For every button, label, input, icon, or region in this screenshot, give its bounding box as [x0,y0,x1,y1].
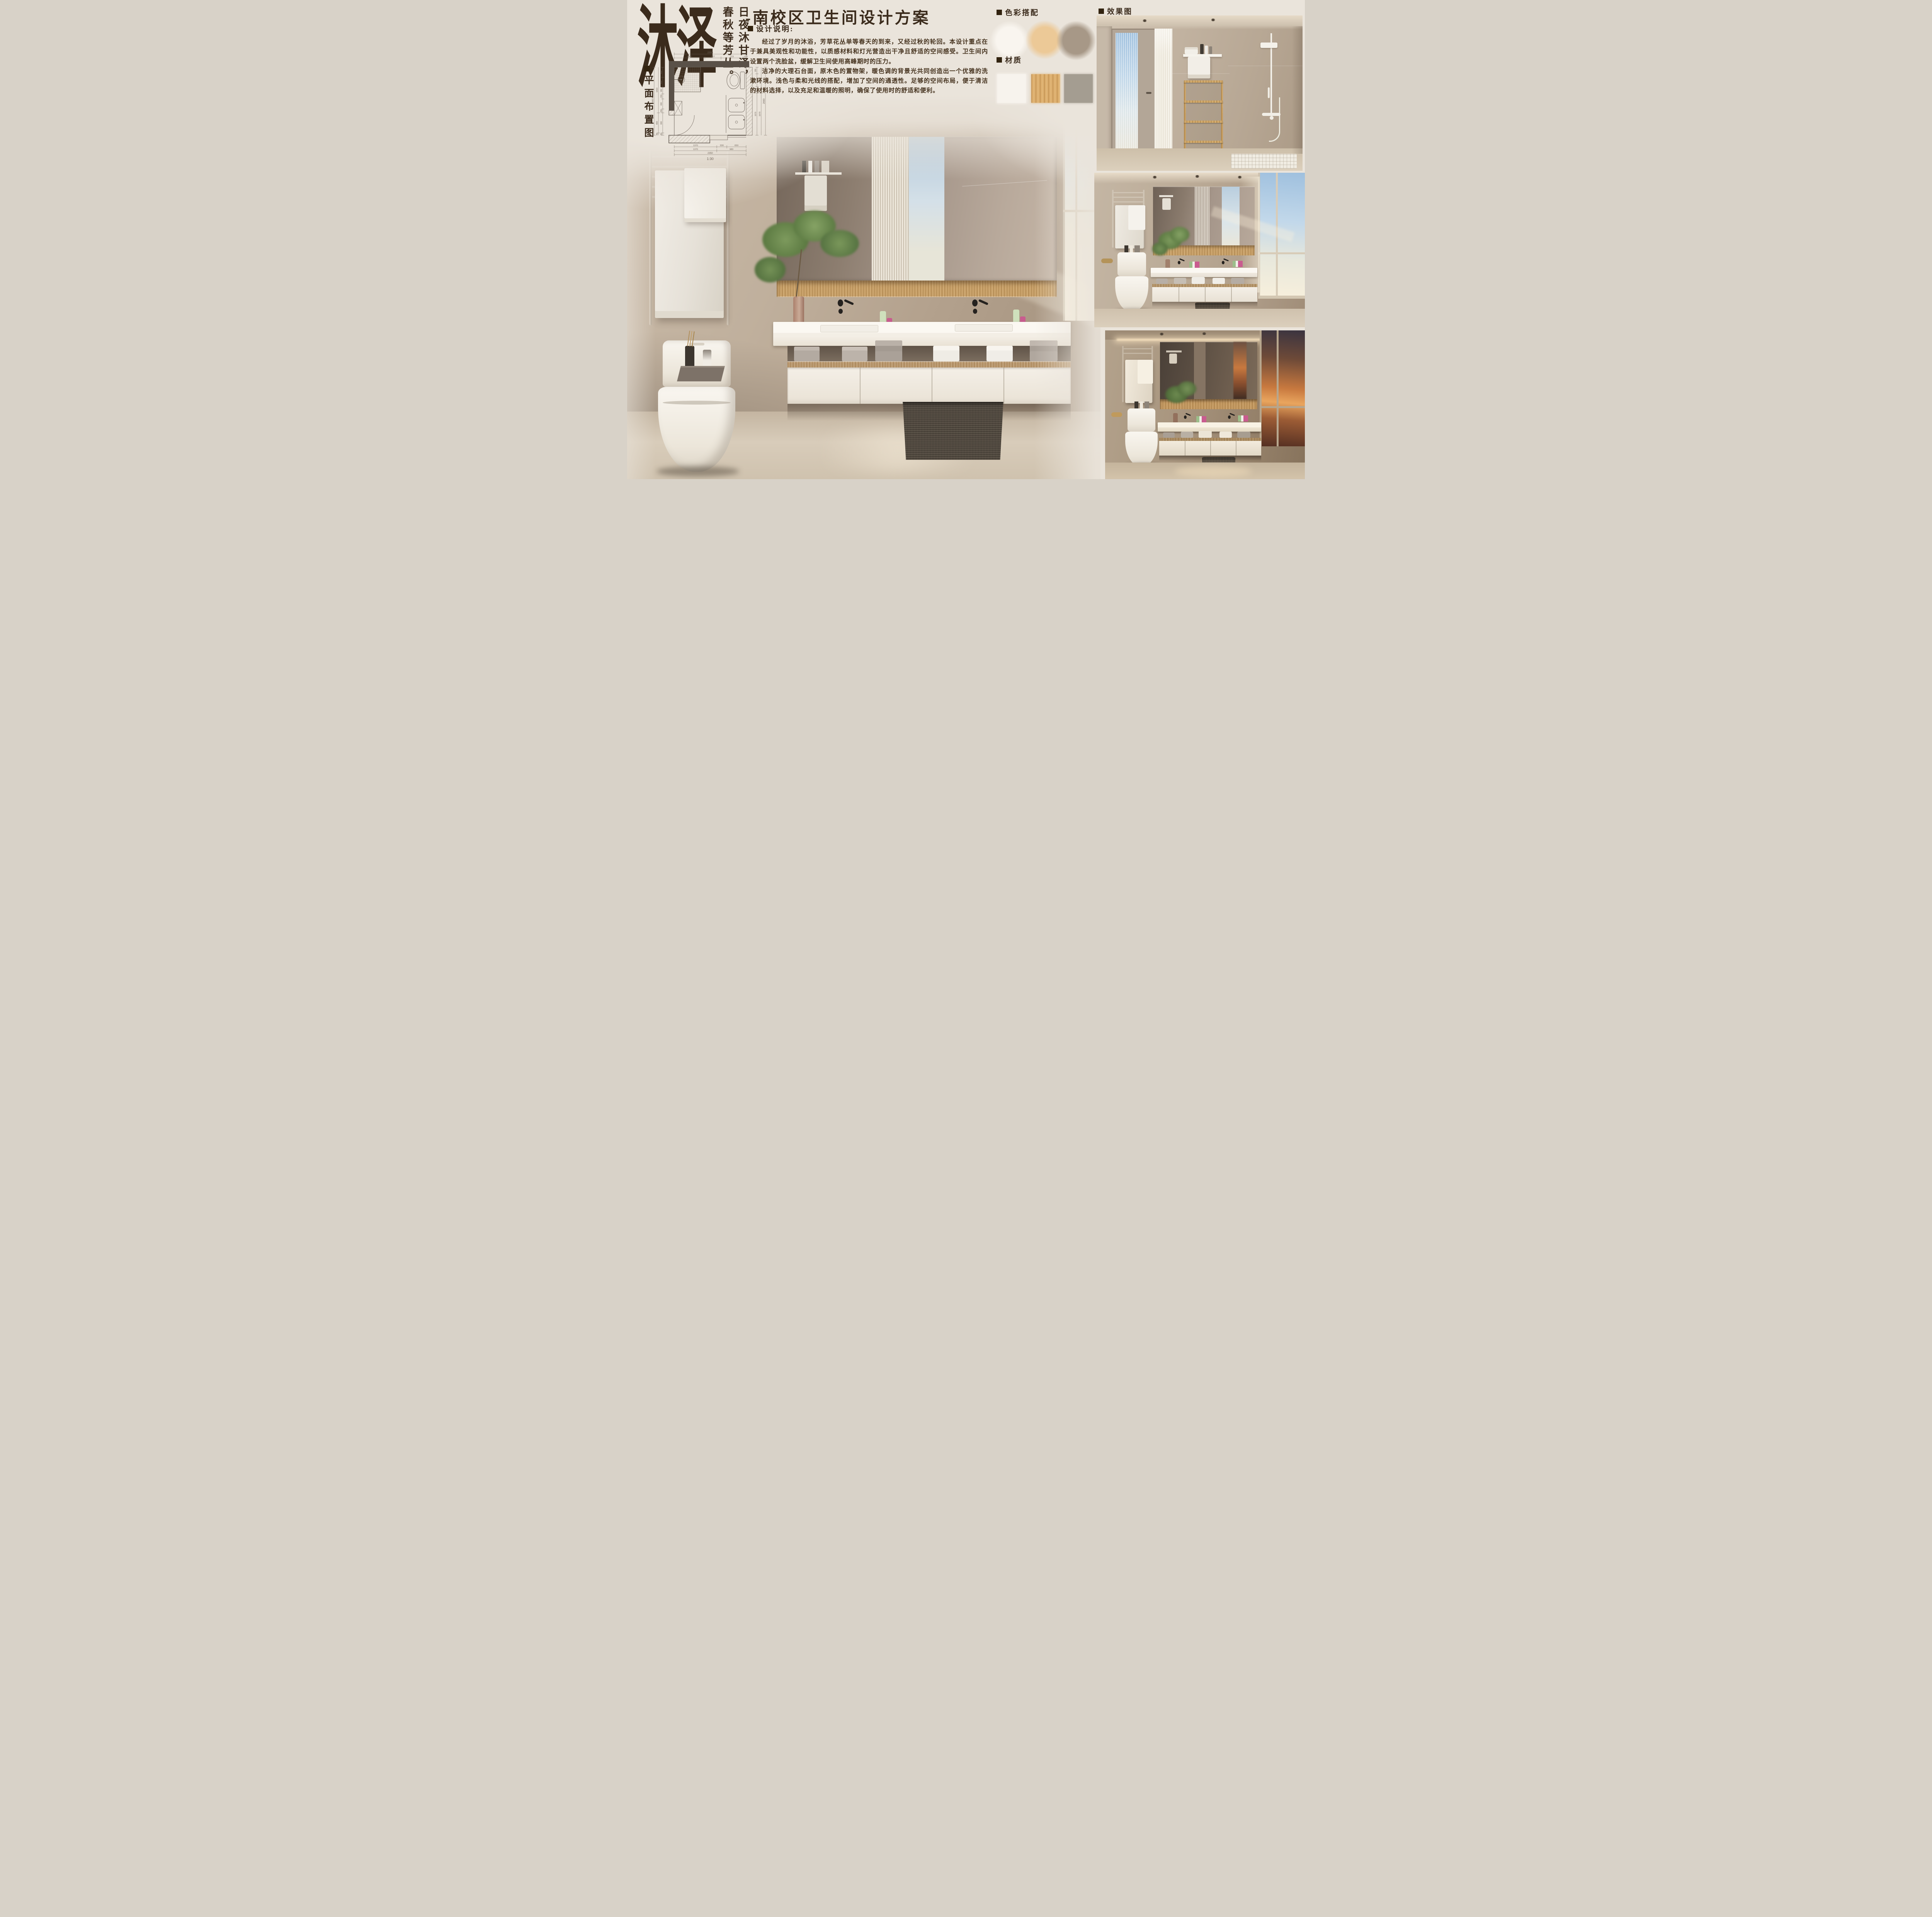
r2-toilet-bowl [1115,276,1148,312]
r3-toilet-tank [1128,408,1155,432]
svg-text:1810: 1810 [656,88,658,92]
r1-shower-knob [1270,116,1274,120]
floor-plan-bullet [644,66,650,71]
svg-text:2690: 2690 [763,99,765,104]
svg-text:100: 100 [744,56,748,58]
r3-shelf-towel [1237,432,1250,438]
hero-faucet-right [972,299,989,317]
r1-shelf-towels [1185,47,1198,54]
svg-text:1670: 1670 [759,112,761,116]
r3-toilet-tray-items [1134,401,1149,408]
r3-towel-rack-bar [1124,353,1151,354]
r3-toiletries [1238,415,1248,422]
design-notes-paragraph-2: 洁净的大理石台面，原木色的置物架，暖色调的背景光共同创造出一个优雅的洗漱环境。浅… [750,66,988,96]
svg-text:2350: 2350 [707,51,713,54]
hero-towel-rack-rail [649,151,652,325]
r3-faucet [1184,413,1191,422]
hero-shelf-gap [787,346,1071,361]
materials-bullet [997,57,1002,63]
mirror-reflection-sky [909,137,944,281]
svg-text:400: 400 [660,81,663,84]
hero-basin-left [820,325,878,332]
color-scheme-bullet [997,10,1002,15]
svg-text:800: 800 [660,121,663,125]
material-swatch-stone [1064,74,1093,103]
svg-text:80: 80 [660,133,663,135]
r1-shower-valve [1262,113,1281,116]
material-swatch-wood [1031,74,1060,103]
hero-towel-rack-bar [652,166,727,168]
r3-faucet [1228,413,1235,422]
r3-mirror-reflection-shelf [1166,350,1182,352]
r3-spotlight [1202,332,1207,335]
r1-hand-shower [1268,87,1270,98]
hero-diffuser-bottle [685,346,694,367]
r2-towel-small [1128,205,1145,230]
r1-shelf-bottle [1200,44,1204,54]
r2-plant-foliage [1170,227,1189,242]
r1-tile-mat [1231,154,1297,168]
svg-text:200: 200 [660,95,663,98]
svg-text:260: 260 [660,89,663,92]
renders-bullet [1099,9,1104,14]
r3-toilet-bowl [1125,432,1158,466]
hero-shelf-board [787,361,1071,367]
hero-shelf-towel [842,347,867,361]
r2-drawers [1152,287,1257,302]
hero-plant-foliage [755,257,786,282]
r3-window-mullion [1277,330,1279,446]
r2-shelf-towel [1213,278,1225,284]
hero-laundry-basket [900,402,1007,460]
r3-shelf-towel [1219,432,1232,438]
r1-shelf-bottle [1205,46,1208,54]
r3-floor-light-pool [1175,466,1252,477]
r1-ceiling [1097,15,1303,29]
render-shower-room [1097,15,1303,171]
svg-text:150: 150 [660,109,663,113]
r2-faucet [1178,259,1185,267]
r2-window-bar [1258,252,1305,254]
r1-hanging-towel [1188,57,1210,78]
r1-shelf-bottle [1209,46,1212,54]
r2-towel-rack-rail [1112,190,1114,248]
r1-ladder-board [1184,141,1223,143]
r1-shelf [1183,54,1222,57]
r2-toiletries [1189,262,1199,268]
hero-toilet-tray [677,366,725,381]
r2-towel-rack-bar [1114,201,1143,202]
r2-shelf-towel [1231,278,1244,284]
hero-basin-right [955,324,1013,332]
r3-window-bar [1260,406,1305,408]
svg-text:2350: 2350 [707,152,713,155]
color-scheme-heading: 色彩搭配 [1005,7,1039,17]
mirror-reflection-bottles [802,161,829,172]
r3-toilet-paper-holder [1111,412,1122,417]
r3-cove-light [1117,339,1264,340]
material-wood-grain [1031,74,1060,103]
hero-mirror [777,137,1057,281]
svg-text:723: 723 [730,56,734,58]
mirror-reflection-fluted-panel [872,137,909,281]
hero-ceiling-glow [755,110,1071,137]
r2-mirror-reflection-shelf [1159,195,1173,197]
design-notes-body: 经过了岁月的沐浴，芳草花丛单等春天的到来，又经过秋的轮回。本设计重点在于兼具美观… [750,37,988,96]
svg-text:800: 800 [656,121,658,125]
svg-text:1000: 1000 [687,56,692,58]
hero-toiletry-bottle [703,350,711,367]
hero-faucet-left [838,299,855,317]
r3-mirror-reflection-sunset [1233,342,1247,399]
render-vanity-night [1105,330,1305,479]
r3-towel-small [1138,360,1153,384]
hero-shelf-towel [986,346,1013,361]
mirror-reflection-shelf [795,172,842,175]
design-poster: 沐泽 日夜沐甘泽， 春秋等芳丛。 平面布置图 [627,0,1305,479]
svg-text:400: 400 [660,71,663,74]
r2-toilet-paper-holder [1101,259,1113,263]
r1-shower-head [1260,43,1277,48]
r1-door-glass [1116,33,1138,155]
r2-toilet-tank [1117,252,1146,276]
r3-shelf-towel [1163,432,1175,438]
r3-toiletries [1196,416,1206,422]
r2-spotlight [1195,175,1200,178]
r3-mirror-reflection-towel [1169,354,1177,364]
r3-shelf-towel [1181,432,1193,438]
svg-text:1370: 1370 [693,145,698,147]
r2-towel-rack-bar [1114,192,1143,193]
r1-ladder-board [1184,80,1223,83]
r2-mirror-reflection-towel [1162,198,1171,210]
r2-shelf-board [1152,284,1257,287]
design-notes-heading: 设计说明: [756,23,794,34]
svg-text:80: 80 [656,133,658,135]
mirror-reflection-wall-seam [962,180,1047,186]
svg-text:2690: 2690 [652,99,654,104]
r1-spotlight [1142,19,1147,22]
r3-window [1260,330,1305,446]
hero-hanging-towel-small [684,168,726,222]
hero-plant-foliage [820,230,859,257]
r2-mirror-reflection-flute [1195,187,1209,245]
hero-countertop [773,322,1071,346]
r2-window-sill [1258,296,1305,299]
design-notes-bullet [748,26,753,31]
r1-ladder-board [1184,100,1223,103]
svg-text:527: 527 [711,56,715,58]
svg-text:980: 980 [730,148,733,151]
r1-spotlight [1211,19,1216,21]
svg-text:400: 400 [660,102,663,106]
svg-text:1:30: 1:30 [707,157,714,161]
color-swatch-taupe [1055,19,1097,62]
r3-shelf-towel [1199,431,1212,438]
r2-plant-foliage [1152,242,1168,255]
r2-towel-rack-bar [1114,197,1143,198]
hero-shelf-towel [933,346,959,361]
r1-door-handle [1146,92,1151,94]
r1-fluted-panel [1155,29,1172,159]
render-vanity-day [1094,173,1305,327]
r3-towel-rack-bar [1124,348,1151,349]
r2-spotlight [1152,176,1157,179]
hero-wood-niche [777,281,1057,297]
svg-text:650: 650 [735,145,738,147]
r3-plant-foliage [1178,381,1196,396]
hero-toilet-shadow [656,466,739,476]
r3-countertop [1158,422,1261,432]
svg-text:330: 330 [720,145,724,147]
r3-drawers [1159,441,1261,456]
design-notes-paragraph-1: 经过了岁月的沐浴，芳草花丛单等春天的到来，又经过秋的轮回。本设计重点在于兼具美观… [750,37,988,66]
r2-toiletries [1233,261,1243,267]
r2-floor [1094,309,1305,327]
r2-toilet-tray-items [1124,245,1140,252]
svg-text:1370: 1370 [693,148,698,151]
r3-towel-rack-rail [1122,346,1124,402]
hero-shelf-towel [794,347,820,361]
svg-text:1670: 1670 [755,112,757,116]
r2-countertop [1151,268,1257,277]
r1-corner-shadow [1292,26,1303,154]
r1-ladder-board [1184,121,1223,123]
r2-shelf-towel [1192,277,1205,284]
renders-heading: 效果图 [1107,6,1133,16]
r3-shelf-board [1159,438,1261,441]
r3-spotlight [1159,333,1164,335]
r2-shelf-towel [1156,279,1168,284]
hero-towel-rack-rail [727,151,730,325]
r2-faucet [1222,259,1229,267]
hero-shelf-towel [875,340,902,361]
hero-toilet-seat-line [663,401,731,405]
hero-vanity-drawers [787,367,1071,404]
mirror-reflection-towel [804,175,827,211]
hero-shelf-towel [1030,340,1058,361]
material-swatch-marble [997,74,1026,103]
materials-heading: 材质 [1005,54,1022,65]
r2-shelf-towel [1174,278,1186,284]
